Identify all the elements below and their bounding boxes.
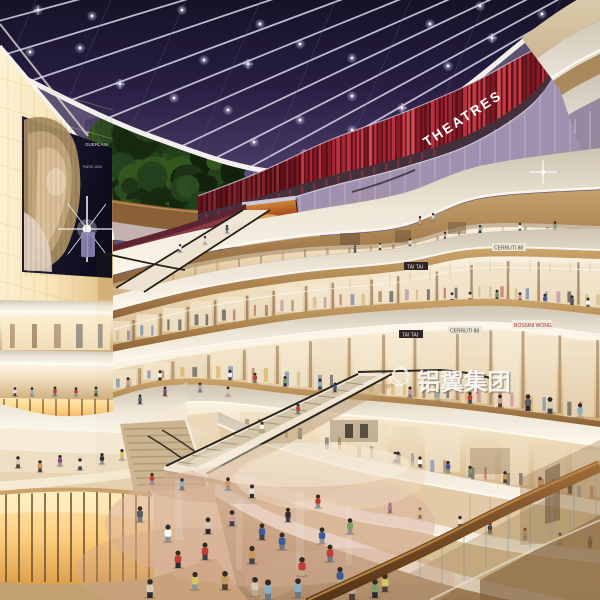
svg-text:铝翼集团: 铝翼集团 [417,369,511,395]
svg-text:GUERLAIN: GUERLAIN [85,142,108,147]
